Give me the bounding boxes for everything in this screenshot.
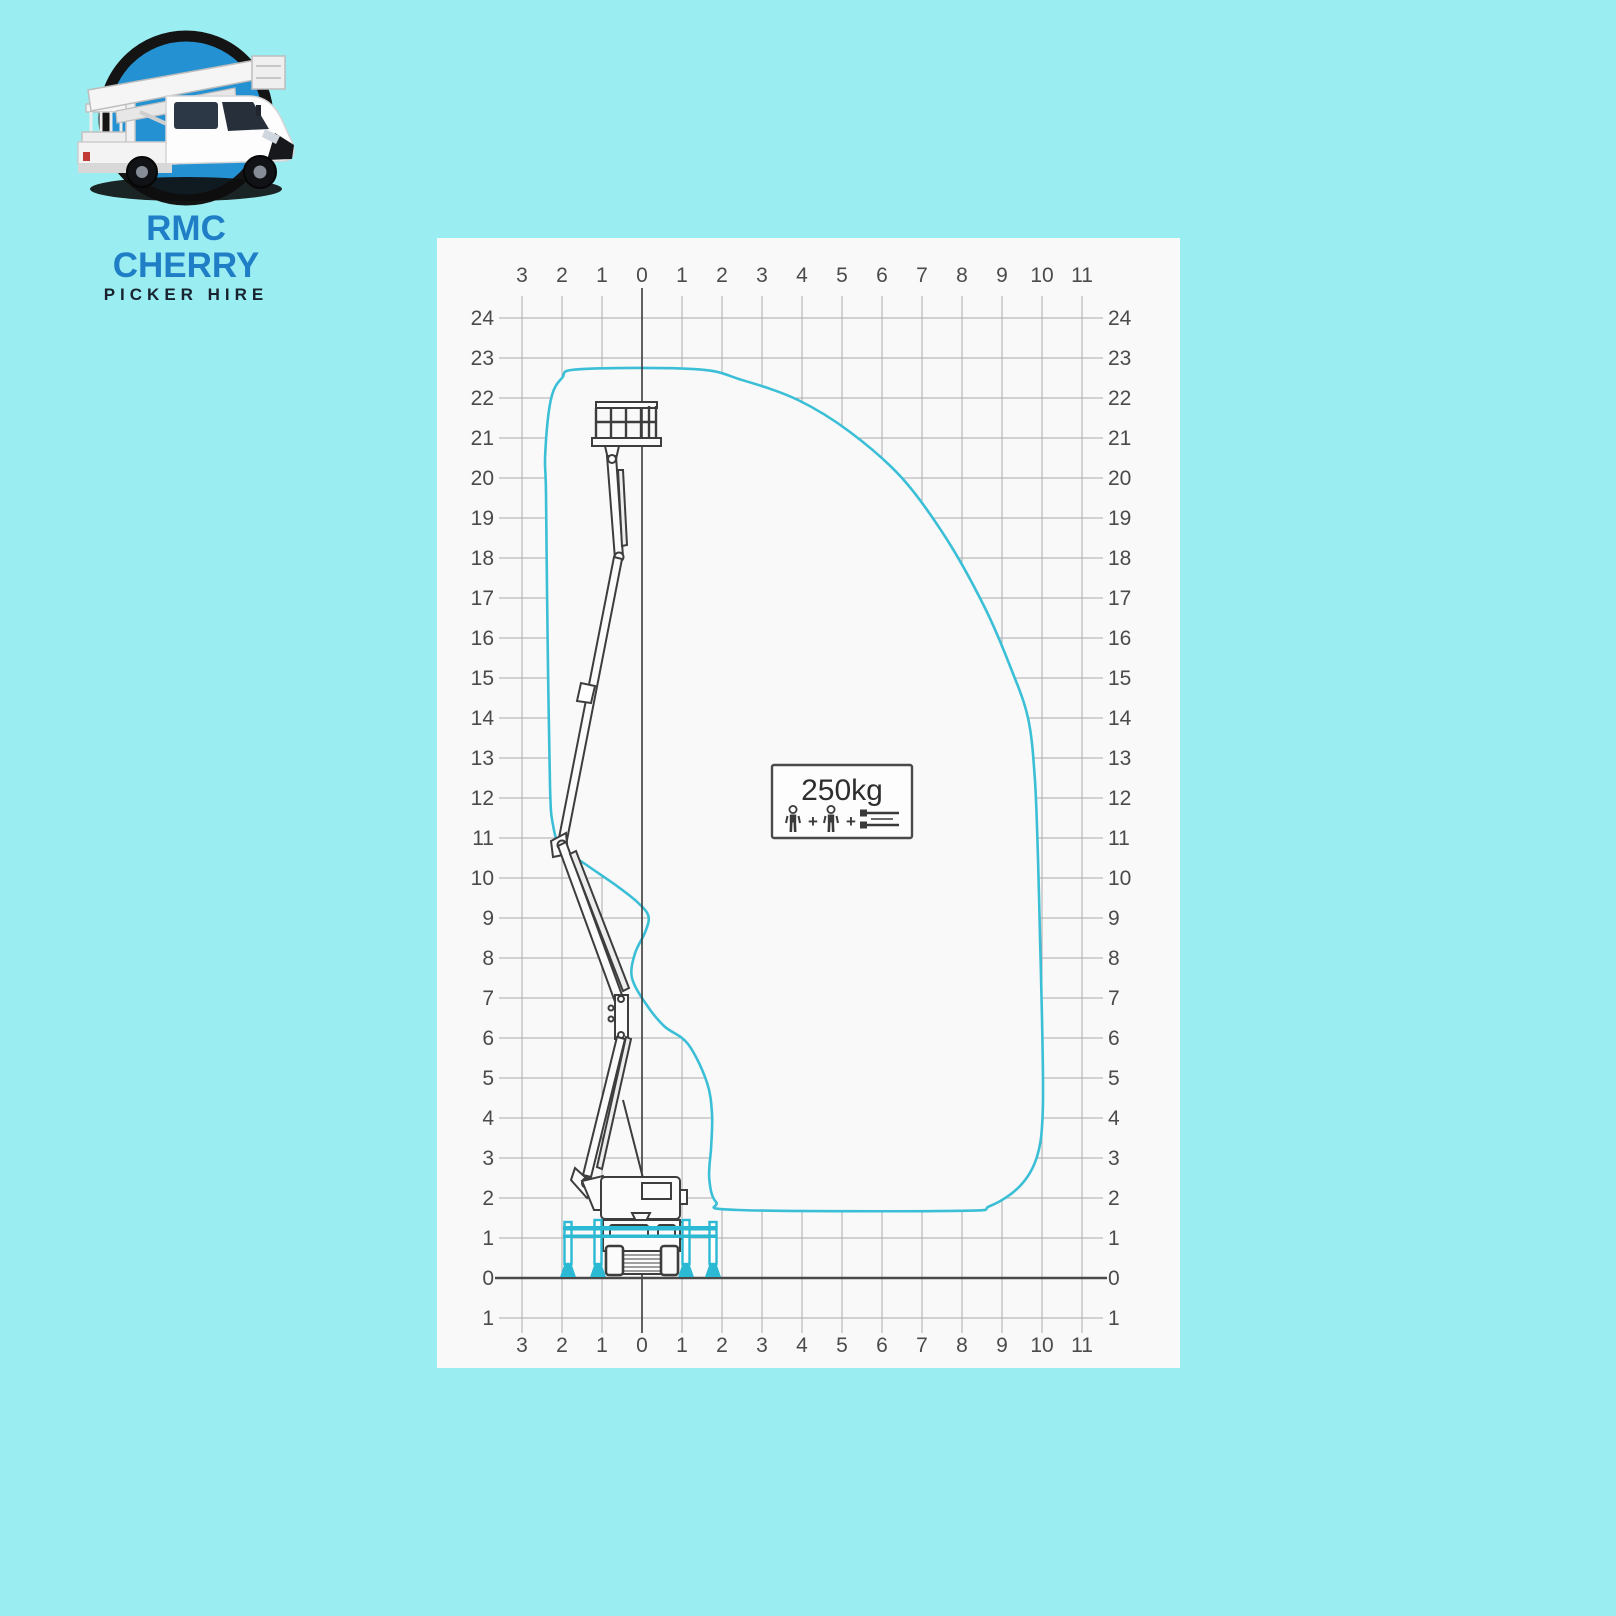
axis-tick-label: 4 [1108,1107,1120,1130]
axis-tick-label: 19 [1108,507,1131,530]
axis-tick-label: 9 [996,1334,1008,1357]
axis-tick-label: 1 [482,1307,494,1330]
axis-tick-label: 1 [676,1334,688,1357]
axis-tick-label: 1 [676,264,688,287]
axis-tick-label: 7 [1108,987,1120,1010]
axis-tick-label: 0 [636,1334,648,1357]
axis-tick-label: 20 [471,467,494,490]
axis-tick-label: 16 [471,627,494,650]
axis-tick-label: 2 [716,1334,728,1357]
axis-tick-label: 2 [556,264,568,287]
axis-tick-label: 2 [716,264,728,287]
axis-tick-label: 19 [471,507,494,530]
axis-tick-label: 1 [596,264,608,287]
wheel-right [661,1246,678,1275]
axis-tick-label: 4 [482,1107,494,1130]
axis-tick-label: 5 [482,1067,494,1090]
axis-tick-label: 0 [482,1267,494,1290]
axis-tick-label: 23 [471,347,494,370]
plus-sign: + [808,812,818,831]
axis-tick-label: 20 [1108,467,1131,490]
axis-tick-label: 11 [1071,264,1093,287]
axis-tick-label: 15 [1108,667,1131,690]
axis-tick-label: 5 [836,1334,848,1357]
axis-tick-label: 13 [1108,747,1131,770]
axis-tick-label: 3 [482,1147,494,1170]
load-capacity-box: 250kg + + [772,765,912,838]
axis-tick-label: 18 [1108,547,1131,570]
axis-tick-label: 7 [916,1334,928,1357]
logo-subtitle: PICKER HIRE [70,285,302,305]
axis-tick-label: 0 [1108,1267,1120,1290]
axis-tick-label: 17 [471,587,494,610]
axis-tick-label: 8 [956,1334,968,1357]
axis-tick-label: 14 [471,707,495,730]
axis-tick-label: 24 [1108,307,1132,330]
axis-tick-label: 3 [756,1334,768,1357]
axis-tick-label: 22 [1108,387,1131,410]
axis-tick-label: 22 [471,387,494,410]
axis-tick-label: 3 [516,1334,528,1357]
axis-tick-label: 6 [482,1027,494,1050]
axis-tick-label: 8 [482,947,494,970]
capacity-value: 250kg [801,774,883,807]
axis-tick-label: 2 [556,1334,568,1357]
axis-tick-label: 21 [1108,427,1131,450]
axis-tick-label: 21 [471,427,494,450]
axis-tick-label: 9 [482,907,494,930]
axis-tick-label: 11 [472,827,494,850]
axis-tick-label: 24 [471,307,495,330]
axis-tick-label: 11 [1108,827,1130,850]
axis-tick-label: 16 [1108,627,1131,650]
axis-tick-label: 6 [1108,1027,1120,1050]
axis-tick-label: 17 [1108,587,1131,610]
axis-tick-label: 4 [796,264,808,287]
axis-tick-label: 1 [482,1227,494,1250]
axis-tick-label: 9 [1108,907,1120,930]
axis-tick-label: 10 [1030,264,1053,287]
axis-tick-label: 2 [1108,1187,1120,1210]
axis-tick-label: 12 [1108,787,1131,810]
axis-tick-label: 14 [1108,707,1132,730]
axis-tick-label: 5 [1108,1067,1120,1090]
wheel-left [606,1246,623,1275]
axis-tick-label: 1 [596,1334,608,1357]
axis-tick-label: 10 [471,867,494,890]
axis-tick-label: 15 [471,667,494,690]
axis-tick-label: 7 [916,264,928,287]
axis-tick-label: 23 [1108,347,1131,370]
axis-tick-label: 5 [836,264,848,287]
axis-tick-label: 9 [996,264,1008,287]
axis-tick-label: 1 [1108,1307,1120,1330]
page: RMC CHERRY PICKER HIRE 33221100112233445… [0,0,1616,1616]
axis-tick-label: 3 [1108,1147,1120,1170]
logo: RMC CHERRY PICKER HIRE [70,26,302,305]
axis-tick-label: 4 [796,1334,808,1357]
axis-tick-label: 6 [876,1334,888,1357]
axis-tick-label: 3 [756,264,768,287]
axis-tick-label: 1 [1108,1227,1120,1250]
plus-sign: + [846,812,856,831]
axis-tick-label: 8 [1108,947,1120,970]
logo-title: RMC CHERRY [70,211,302,285]
logo-emblem [70,26,302,208]
axis-tick-label: 3 [516,264,528,287]
axis-tick-label: 2 [482,1187,494,1210]
axis-tick-label: 10 [1030,1334,1053,1357]
axis-tick-label: 18 [471,547,494,570]
axis-tick-label: 10 [1108,867,1131,890]
axis-tick-label: 0 [636,264,648,287]
axis-tick-label: 6 [876,264,888,287]
envelope-diagram-panel: 3322110011223344556677889910101111242423… [437,238,1180,1368]
axis-tick-label: 7 [482,987,494,1010]
axis-tick-label: 8 [956,264,968,287]
axis-tick-label: 11 [1071,1334,1093,1357]
envelope-chart: 3322110011223344556677889910101111242423… [437,238,1180,1368]
axis-tick-label: 13 [471,747,494,770]
axis-tick-label: 12 [471,787,494,810]
